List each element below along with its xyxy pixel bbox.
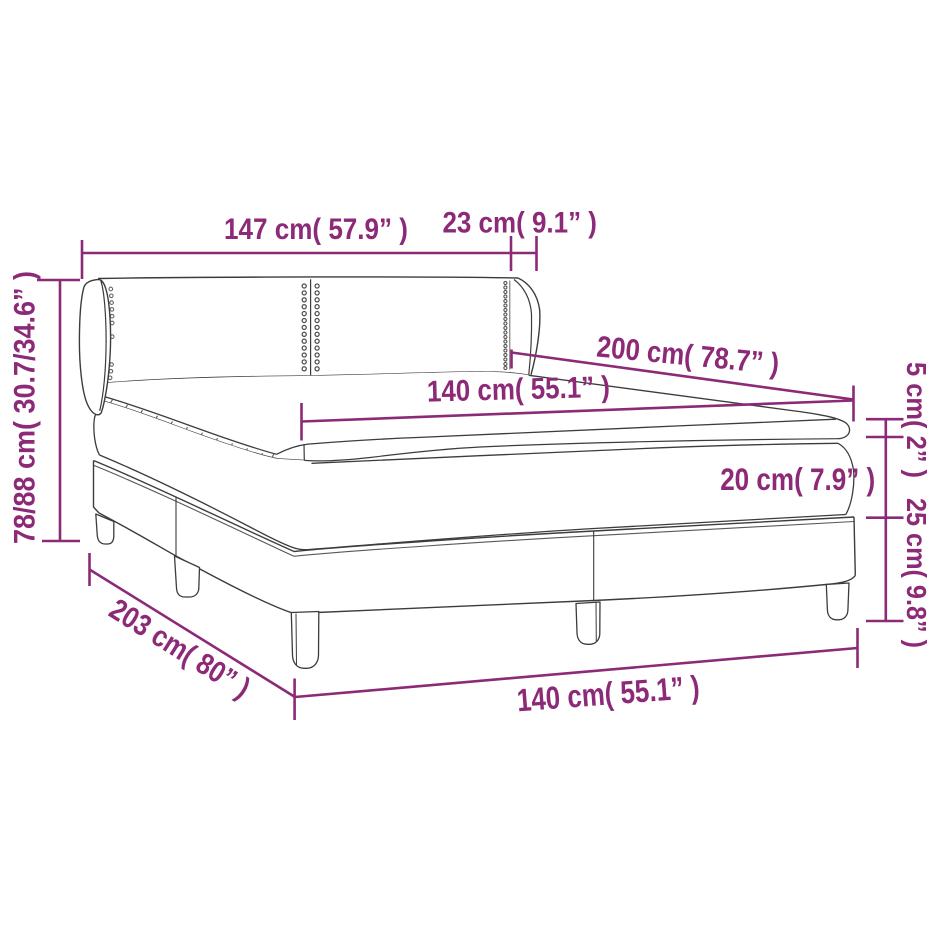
- svg-text:25 cm( 9.8” ): 25 cm( 9.8” ): [901, 498, 932, 648]
- svg-text:23 cm( 9.1” ): 23 cm( 9.1” ): [442, 207, 597, 240]
- svg-text:78/88 cm( 30.7/34.6” ): 78/88 cm( 30.7/34.6” ): [9, 271, 42, 544]
- svg-text:140 cm( 55.1” ): 140 cm( 55.1” ): [427, 371, 611, 409]
- svg-text:5 cm( 2” ): 5 cm( 2” ): [901, 362, 932, 478]
- svg-text:147 cm( 57.9” ): 147 cm( 57.9” ): [224, 213, 408, 246]
- svg-text:20 cm( 7.9” ): 20 cm( 7.9” ): [720, 461, 875, 497]
